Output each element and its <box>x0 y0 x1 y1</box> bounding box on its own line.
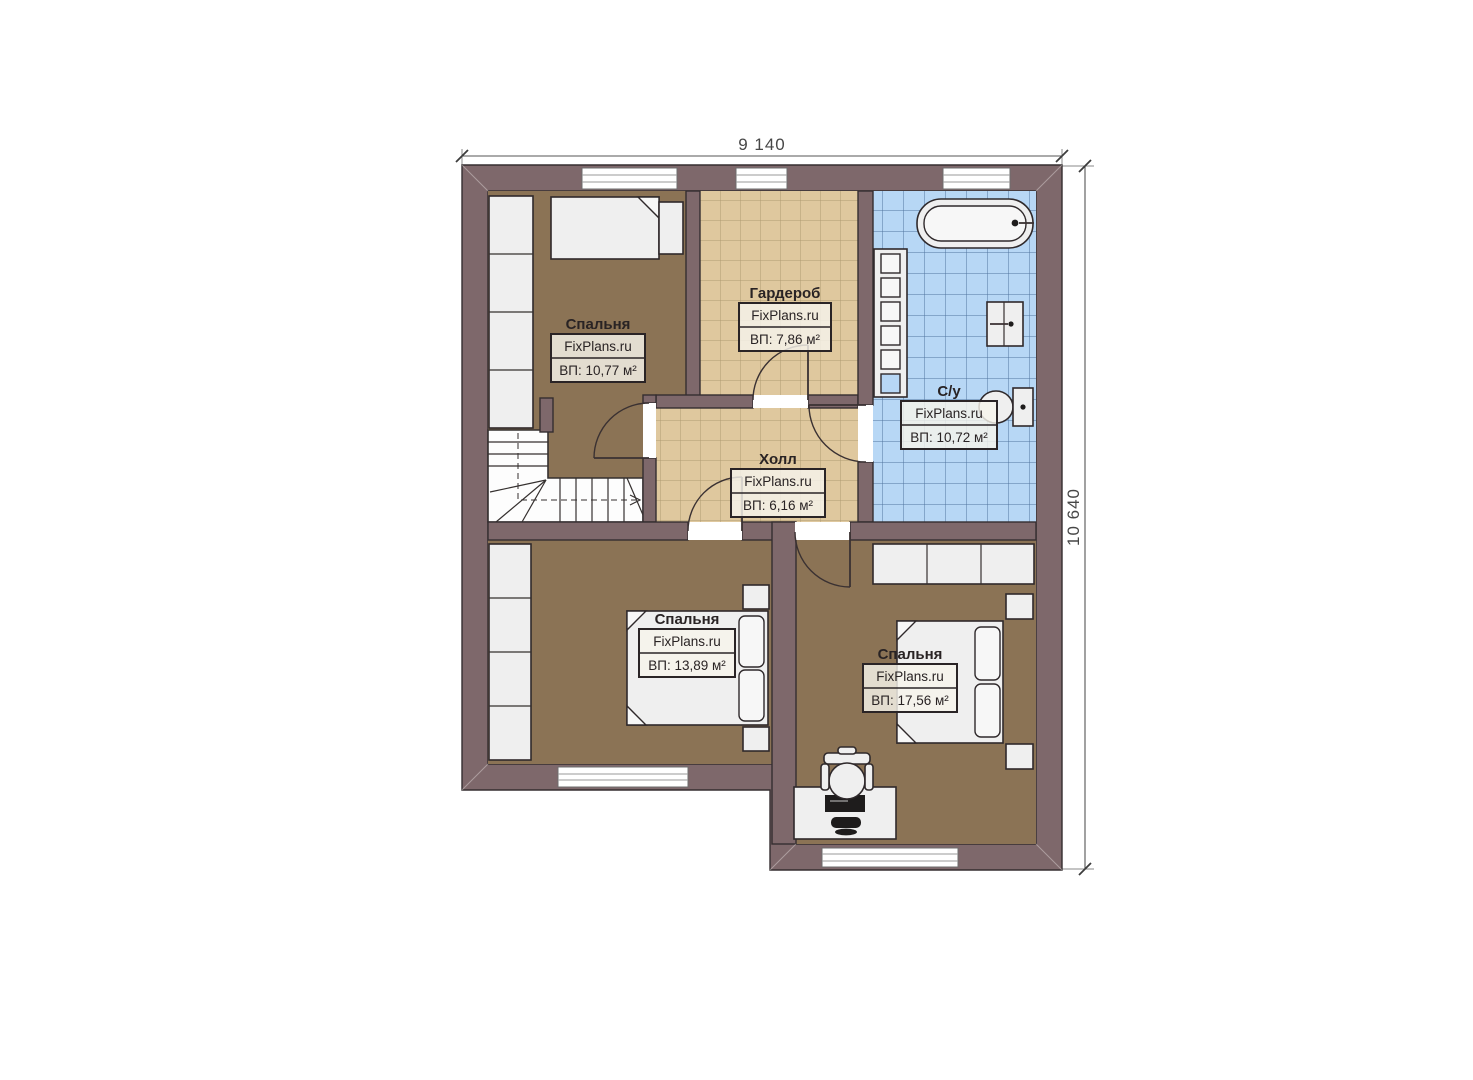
nightstand <box>1006 594 1033 619</box>
sink-tap-dot <box>1008 321 1013 326</box>
chair-armrest <box>821 764 829 790</box>
chair-seat <box>829 763 865 799</box>
shelf-box-2 <box>881 278 900 297</box>
shelf-box-3 <box>881 302 900 321</box>
nightstand <box>743 585 769 609</box>
watermark: FixPlans.ru <box>744 474 812 489</box>
pillow <box>975 684 1000 737</box>
nightstand <box>743 727 769 751</box>
keyboard <box>831 817 861 828</box>
window-top-2 <box>736 168 787 189</box>
room-area: ВП: 13,89 м² <box>648 658 726 673</box>
watermark: FixPlans.ru <box>876 669 944 684</box>
pillow <box>739 670 764 721</box>
nightstand <box>659 202 683 254</box>
chair-armrest <box>865 764 873 790</box>
wall-hall-top-right <box>808 395 858 408</box>
dimension-right: 10 640 <box>1058 160 1094 875</box>
chair-headrest <box>838 747 856 754</box>
wall-bed1-wardrobe <box>686 191 700 404</box>
room-area: ВП: 7,86 м² <box>750 332 821 347</box>
wall-stair-stub <box>540 398 553 432</box>
window-bottom-left <box>558 767 688 787</box>
floor-plan-canvas: 9 140 10 640 <box>0 0 1473 1080</box>
wall-hall-left-bottom <box>643 458 656 522</box>
nightstand <box>1006 744 1033 769</box>
pillow <box>975 627 1000 680</box>
wardrobe-cabinet <box>873 544 1034 584</box>
wall-band-left <box>488 522 688 540</box>
room-name: Спальня <box>878 646 943 663</box>
label-wardrobe-room: Гардероб FixPlans.ru ВП: 7,86 м² <box>739 285 831 351</box>
room-name: Холл <box>759 451 797 468</box>
room-area: ВП: 10,72 м² <box>910 430 988 445</box>
wall-hall-bath <box>858 462 873 522</box>
watermark: FixPlans.ru <box>564 339 632 354</box>
mouse <box>835 829 857 836</box>
toilet-button <box>1020 404 1025 409</box>
wall-wardrobe-bath <box>858 191 873 405</box>
shelf-box-5 <box>881 350 900 369</box>
floor-plan-page: 9 140 10 640 <box>0 0 1473 1080</box>
room-name: Спальня <box>566 316 631 333</box>
pillow <box>739 616 764 667</box>
wall-hall-left-top <box>643 395 656 403</box>
wall-bedroom-divider <box>772 522 796 844</box>
room-name: С/у <box>937 383 961 400</box>
window-bottom-right <box>822 848 958 867</box>
dimension-top: 9 140 <box>456 135 1068 168</box>
shelf-box-6 <box>881 374 900 393</box>
room-name: Гардероб <box>750 285 821 302</box>
window-top-3 <box>943 168 1010 189</box>
watermark: FixPlans.ru <box>653 634 721 649</box>
room-name: Спальня <box>655 611 720 628</box>
room-area: ВП: 6,16 м² <box>743 498 814 513</box>
shelf-box-1 <box>881 254 900 273</box>
wall-hall-top-left <box>656 395 753 408</box>
watermark: FixPlans.ru <box>751 308 819 323</box>
watermark: FixPlans.ru <box>915 406 983 421</box>
room-area: ВП: 10,77 м² <box>559 363 637 378</box>
single-bed <box>551 197 659 259</box>
window-top-1 <box>582 168 677 189</box>
dimension-top-label: 9 140 <box>738 135 786 154</box>
bathtub-inner <box>924 206 1026 241</box>
shelf-box-4 <box>881 326 900 345</box>
dimension-right-label: 10 640 <box>1064 488 1083 546</box>
room-area: ВП: 17,56 м² <box>871 693 949 708</box>
bathtub-drain <box>1012 220 1019 227</box>
wall-band-right <box>850 522 1036 540</box>
